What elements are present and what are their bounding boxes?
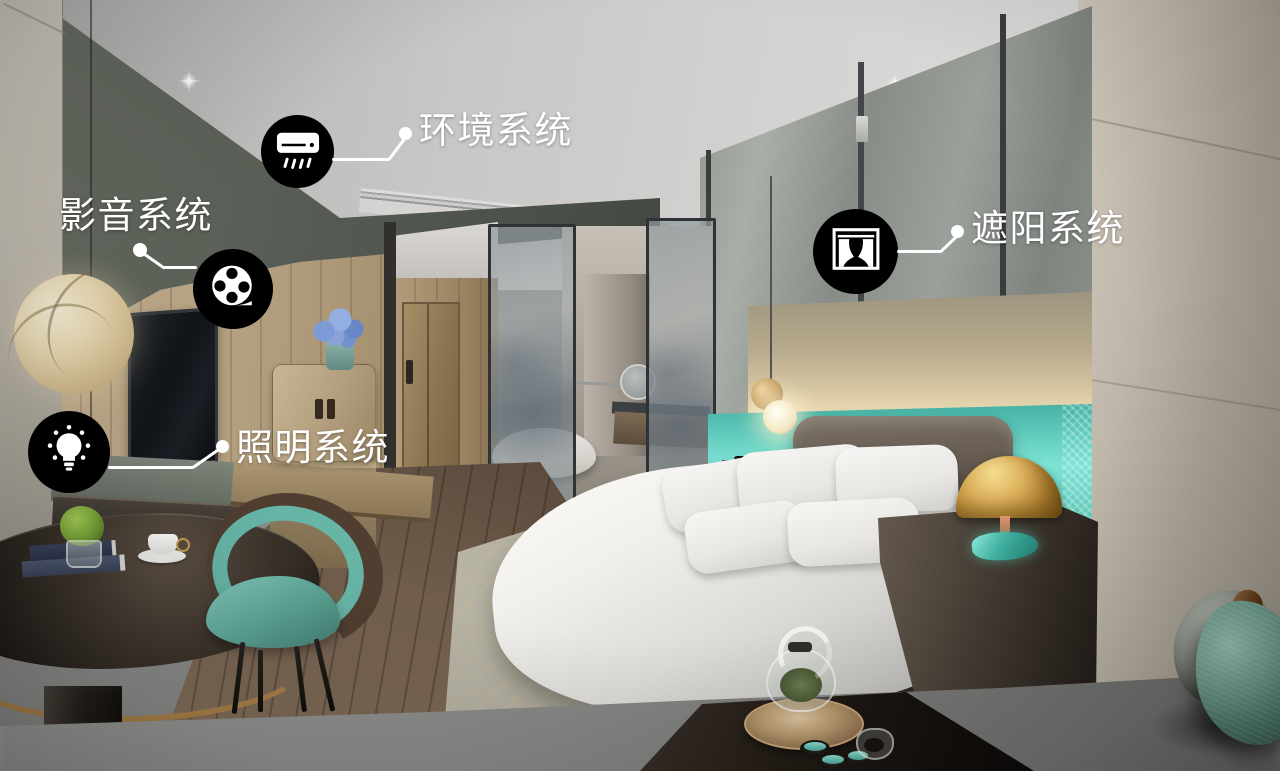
shading-system-label: 遮阳系统: [971, 210, 1125, 247]
glass-cup-tea: [864, 738, 884, 752]
leader-dot: [399, 127, 412, 140]
lighting-system-hotspot[interactable]: [28, 411, 110, 493]
pendant-cord: [770, 176, 772, 390]
cabinet-handle: [327, 399, 335, 419]
coffee-cup: [148, 534, 178, 554]
door-lock: [406, 360, 413, 384]
pendant-light: [763, 400, 797, 434]
teapot-lid: [788, 642, 812, 652]
cabinet-handle: [315, 399, 323, 419]
cup-handle: [176, 538, 190, 552]
floor-lamp: [14, 274, 134, 394]
headboard-upper-panel: [748, 292, 1092, 420]
shading-system-hotspot[interactable]: [813, 209, 898, 294]
film-reel-icon: [208, 262, 258, 317]
glass-tea-cup: [856, 728, 894, 760]
leader-dot: [951, 225, 964, 238]
tea-cup-lid: [822, 755, 844, 764]
leader-dot: [216, 440, 229, 453]
hydrangea-flowers: [308, 306, 372, 352]
curtain-icon: [831, 226, 881, 277]
ceiling-spotlight: [176, 68, 202, 94]
chair-leg: [258, 650, 263, 712]
lighting-system-label: 照明系统: [236, 429, 390, 466]
audio-video-system-hotspot[interactable]: [193, 249, 273, 329]
leader-line: [163, 266, 197, 269]
plant-pot: [66, 540, 102, 568]
environment-system-label: 环境系统: [419, 112, 573, 149]
leader-line: [108, 466, 194, 469]
entry-door: [402, 302, 460, 482]
glass-hinge: [856, 116, 868, 142]
leader-line: [332, 158, 390, 161]
tea-cup-lid: [804, 742, 826, 751]
hotel-room-rendering: 环境系统 影音系统: [0, 0, 1280, 771]
air-conditioner-icon: [275, 127, 321, 176]
audio-video-system-label: 影音系统: [59, 197, 213, 234]
light-bulb-icon: [43, 424, 95, 481]
leader-line: [897, 250, 942, 253]
environment-system-hotspot[interactable]: [261, 115, 334, 188]
